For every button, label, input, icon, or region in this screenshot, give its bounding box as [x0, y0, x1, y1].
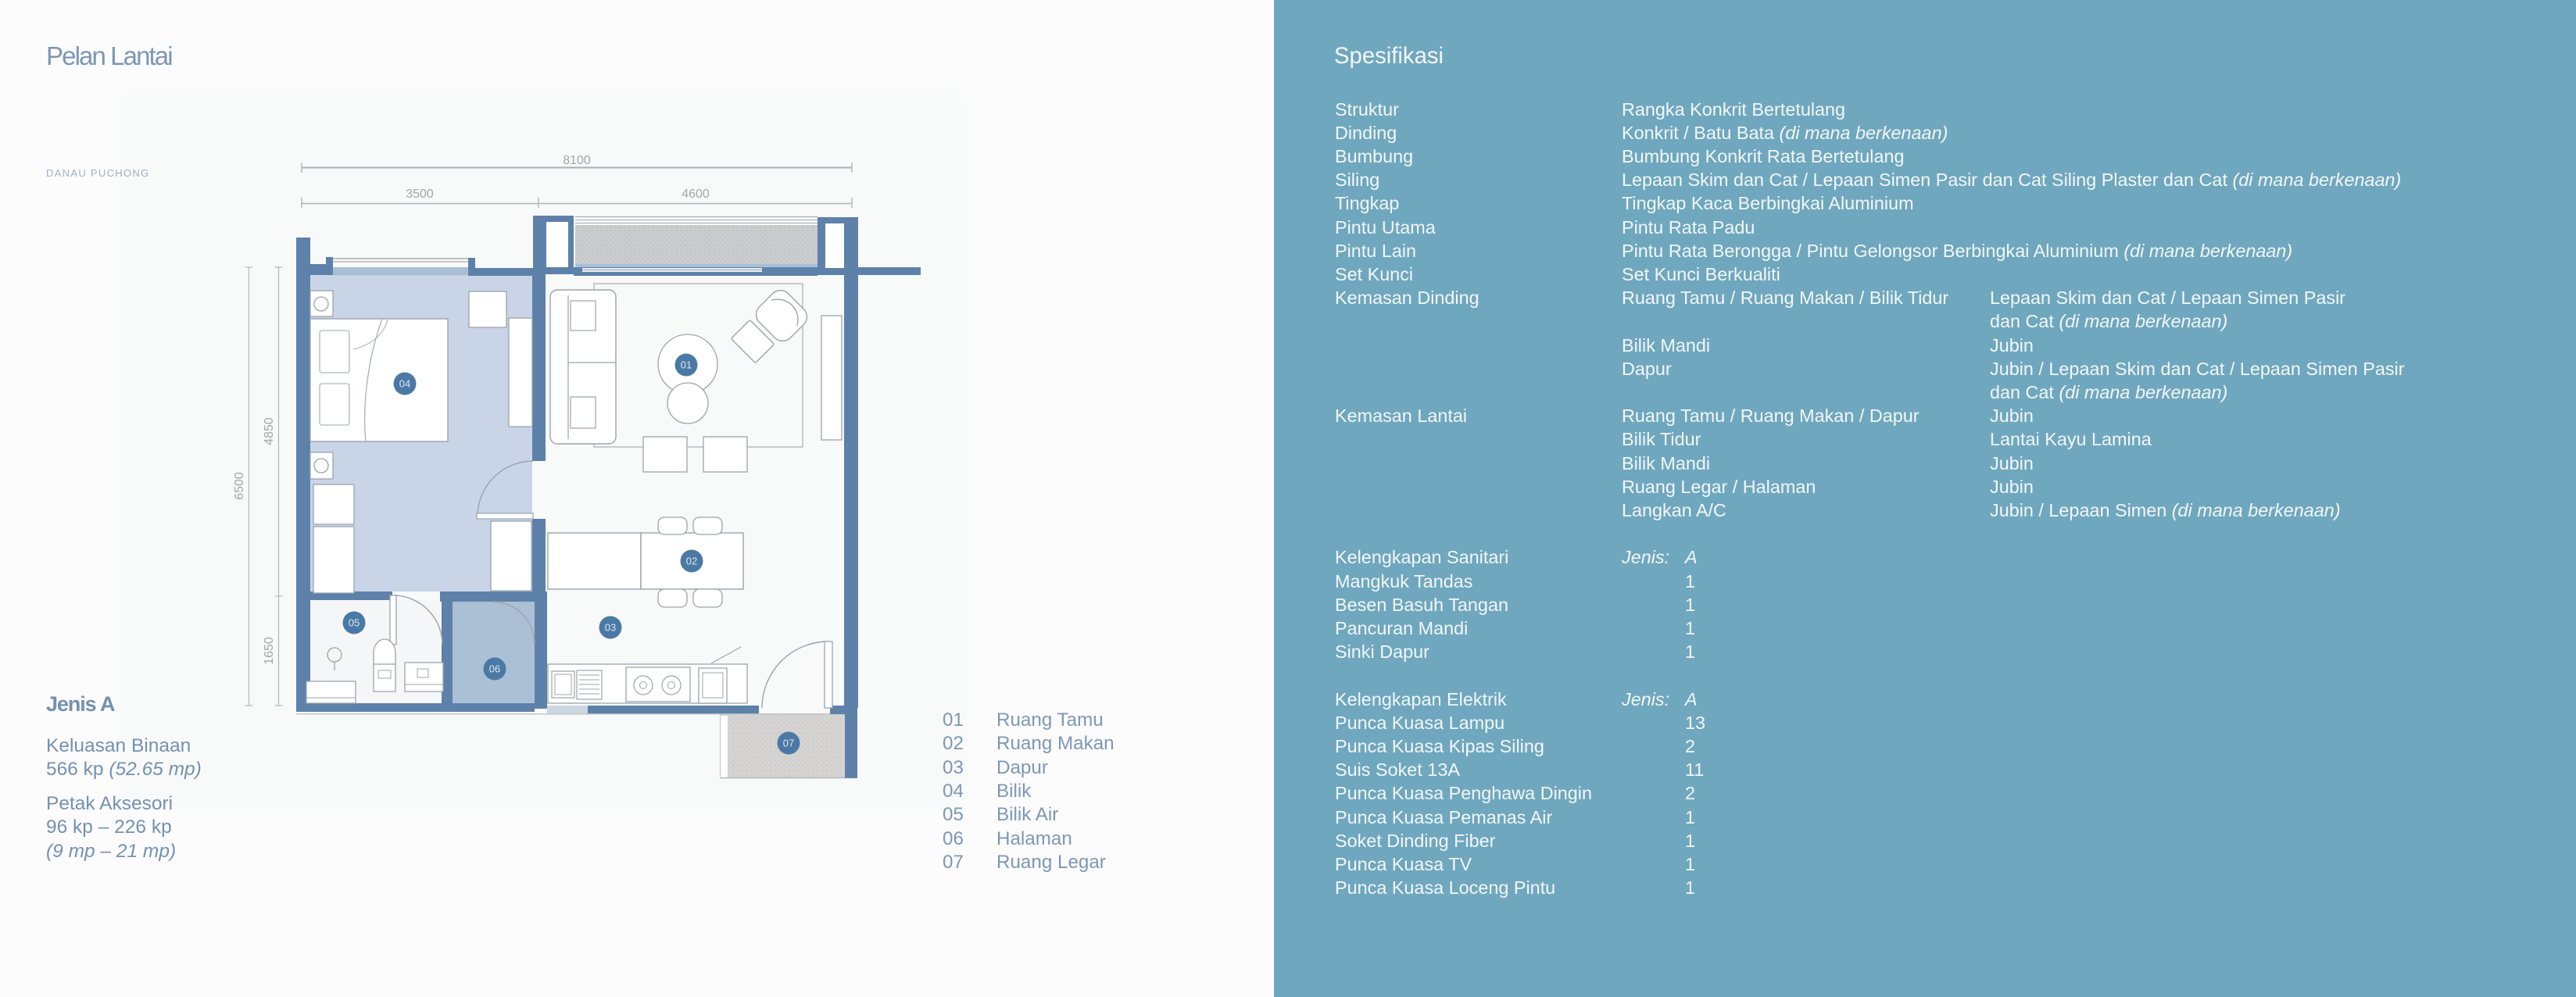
svg-text:02: 02 — [686, 556, 697, 567]
svg-text:06: 06 — [489, 663, 500, 675]
svg-text:4850: 4850 — [263, 417, 276, 445]
svg-text:01: 01 — [681, 359, 692, 371]
svg-text:05: 05 — [349, 617, 360, 629]
svg-text:07: 07 — [783, 738, 794, 749]
svg-text:03: 03 — [605, 622, 616, 634]
svg-text:4600: 4600 — [682, 188, 710, 201]
svg-text:04: 04 — [399, 378, 410, 390]
svg-text:6500: 6500 — [233, 472, 246, 500]
svg-text:1650: 1650 — [263, 637, 276, 665]
svg-text:3500: 3500 — [406, 188, 434, 201]
svg-text:8100: 8100 — [563, 154, 591, 167]
